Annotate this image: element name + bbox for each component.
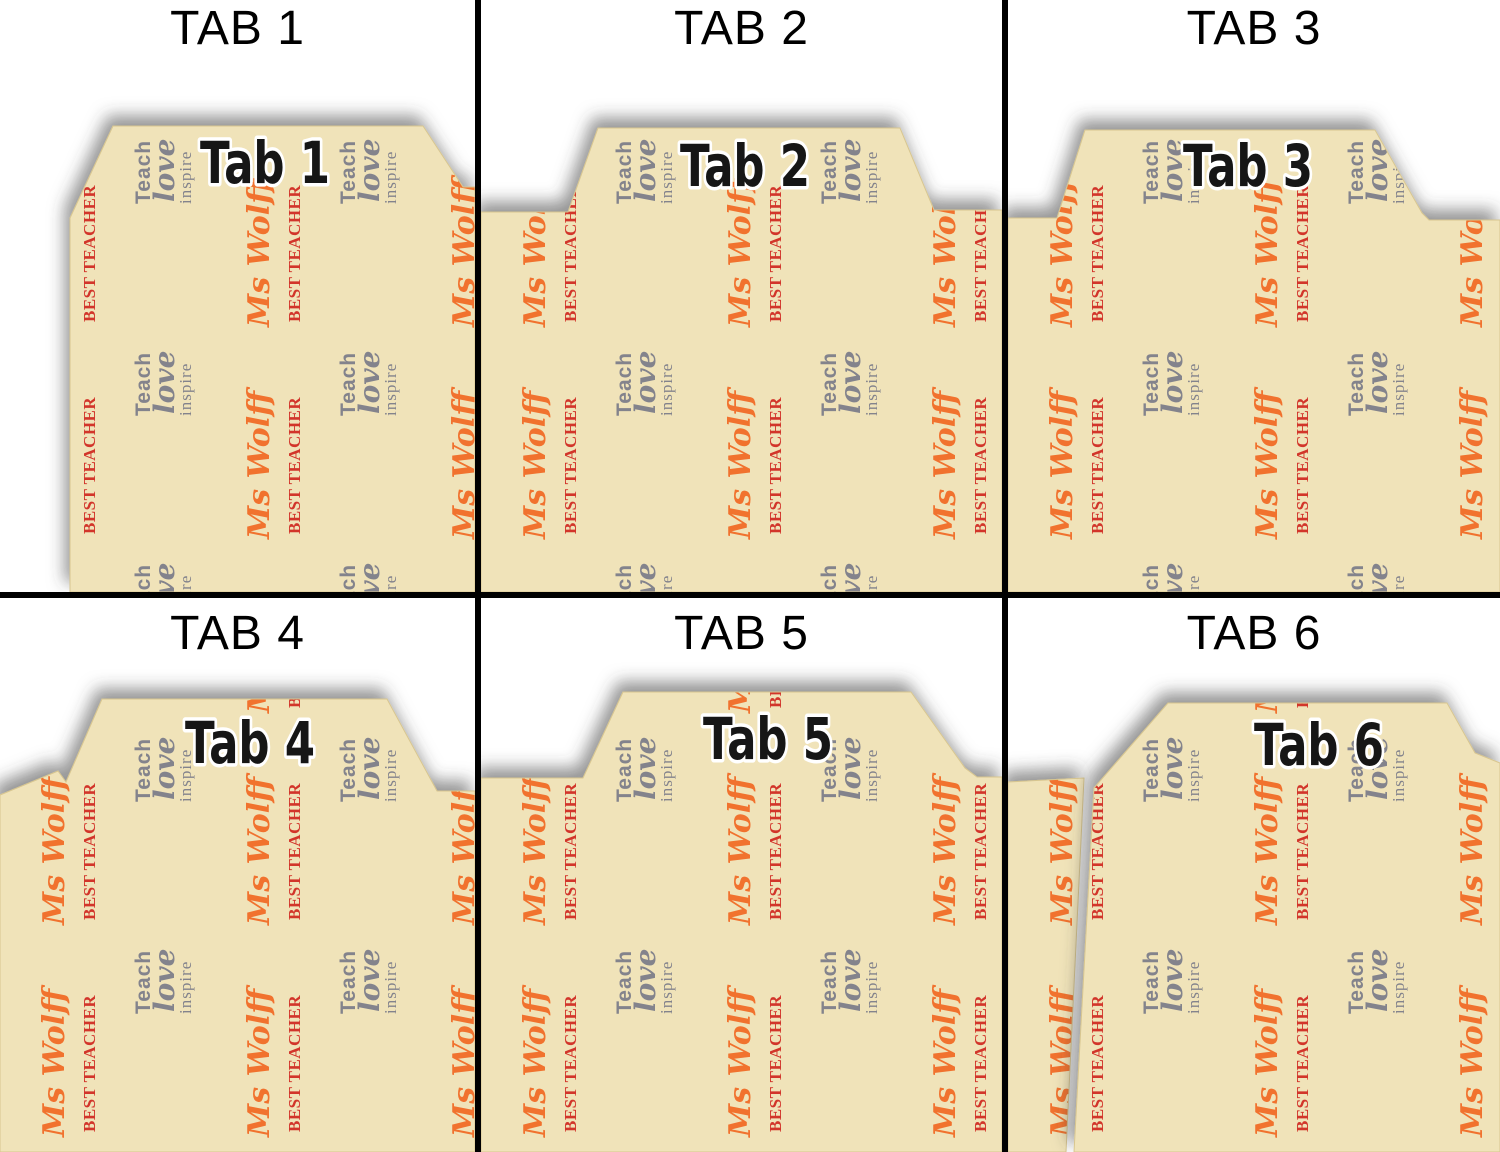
folder-preview-tab-1: Tab 1	[0, 0, 475, 592]
cell-title-tab-1: TAB 1	[0, 4, 475, 54]
folder-tab-label: Tab 1	[200, 129, 330, 197]
preview-cell-tab-2: TAB 2 Tab 2	[481, 0, 1002, 592]
folder-preview-tab-6: Tab 6	[1008, 598, 1500, 1152]
preview-cell-tab-5: TAB 5 Tab 5	[481, 598, 1002, 1152]
cell-title-tab-4: TAB 4	[0, 609, 475, 659]
cell-title-tab-2: TAB 2	[481, 4, 1002, 54]
folder-tab-label: Tab 4	[185, 709, 315, 777]
folder-preview-tab-2: Tab 2	[481, 0, 1002, 592]
folder-preview-tab-4: Tab 4	[0, 598, 475, 1152]
folder-tab-label: Tab 5	[703, 705, 833, 773]
preview-cell-tab-6: TAB 6 Tab 6	[1008, 598, 1500, 1152]
folder-tab-label: Tab 3	[1183, 132, 1313, 200]
folder-tab-label: Tab 6	[1254, 711, 1384, 779]
tab-divider-preview-board: Ms Wolff BEST TEACHER Teach love inspire…	[0, 0, 1500, 1152]
neighbor-folder-edge	[1008, 778, 1084, 1152]
preview-cell-tab-3: TAB 3 Tab 3	[1008, 0, 1500, 592]
folder-preview-tab-5: Tab 5	[481, 598, 1002, 1152]
folder-preview-tab-3: Tab 3	[1008, 0, 1500, 592]
preview-cell-tab-4: TAB 4 Tab 4	[0, 598, 475, 1152]
cell-title-tab-3: TAB 3	[1008, 4, 1500, 54]
preview-cell-tab-1: TAB 1 Tab 1	[0, 0, 475, 592]
cell-title-tab-6: TAB 6	[1008, 609, 1500, 659]
folder-tab-label: Tab 2	[680, 132, 810, 200]
cell-title-tab-5: TAB 5	[481, 609, 1002, 659]
